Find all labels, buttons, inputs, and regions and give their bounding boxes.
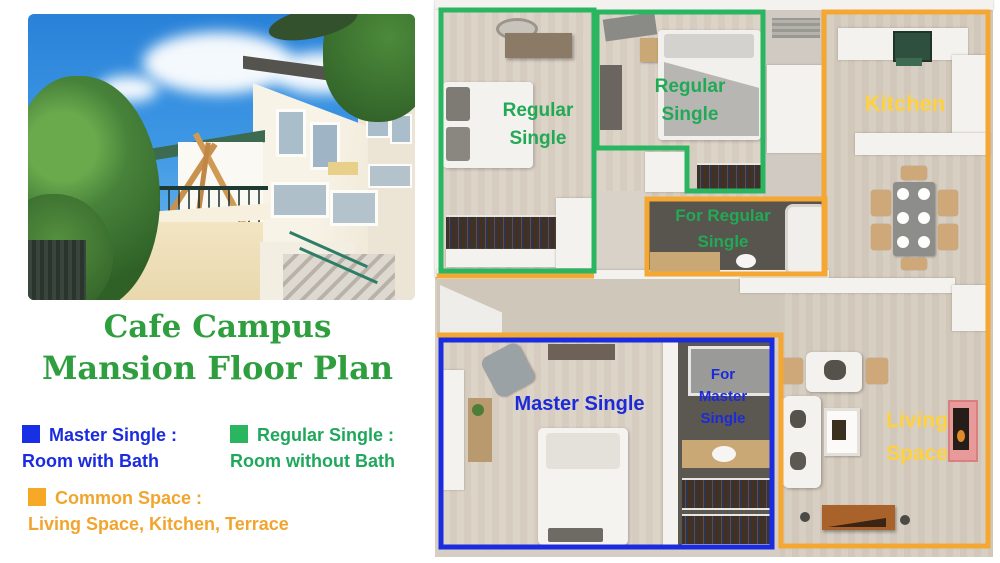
regular-single-1-label: Regular Single: [478, 97, 598, 153]
regular-single-2-label: Regular Single: [630, 73, 750, 129]
staircase: [283, 254, 395, 300]
window: [330, 190, 378, 226]
window: [276, 109, 306, 157]
fence: [28, 240, 86, 300]
page-title: Cafe Campus Mansion Floor Plan: [0, 306, 435, 388]
legend-label: Regular Single :: [257, 425, 394, 445]
legend-description: Living Space, Kitchen, Terrace: [28, 511, 368, 537]
for-regular-single-label: For Regular Single: [648, 203, 798, 255]
legend-label: Master Single :: [49, 425, 177, 445]
legend-label: Common Space :: [55, 488, 202, 508]
master-single-label: Master Single: [477, 393, 682, 416]
building-photo: [28, 14, 415, 300]
legend-description: Room with Bath: [22, 448, 234, 474]
living-space-label: Living Space: [858, 404, 976, 470]
common-space-swatch-icon: [28, 488, 46, 506]
window: [368, 164, 412, 188]
legend-item-regular-single: Regular Single : Room without Bath: [230, 422, 440, 474]
legend-item-master-single: Master Single : Room with Bath: [22, 422, 234, 474]
kitchen-label: Kitchen: [845, 91, 965, 117]
window: [271, 182, 329, 218]
master-single-swatch-icon: [22, 425, 40, 443]
title-line-2: Mansion Floor Plan: [0, 348, 435, 388]
regular-single-swatch-icon: [230, 425, 248, 443]
window-awning: [328, 162, 358, 175]
legend-item-common-space: Common Space : Living Space, Kitchen, Te…: [28, 485, 368, 537]
title-line-1: Cafe Campus: [0, 306, 435, 348]
for-master-single-label: For Master Single: [690, 364, 756, 430]
legend-description: Room without Bath: [230, 448, 440, 474]
cafe-campus-floorplan-flyer: { "title": {"line1": "Cafe Campus", "lin…: [0, 0, 1000, 563]
